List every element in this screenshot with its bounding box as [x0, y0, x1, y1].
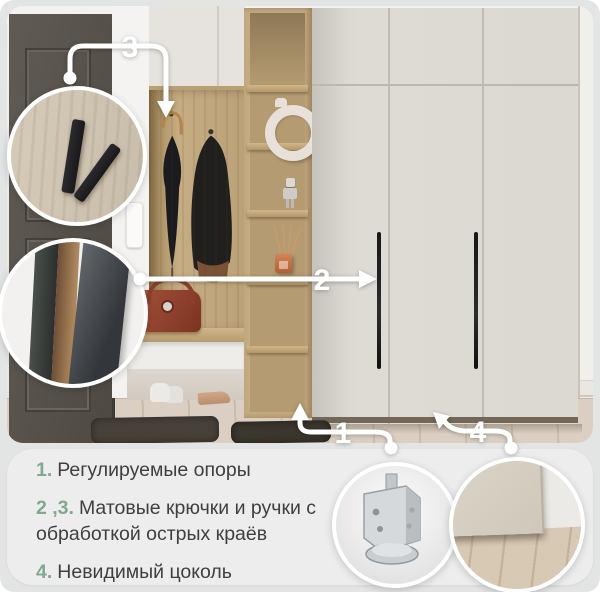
wardrobe-handle	[474, 232, 478, 369]
legend-number: 1.	[36, 459, 52, 481]
side-wall	[578, 6, 593, 398]
door-mat	[231, 420, 331, 443]
bracket-hole	[409, 507, 414, 512]
figurine-torso	[283, 188, 297, 199]
wardrobe	[312, 8, 578, 424]
figurine-head	[286, 178, 295, 187]
shelf	[247, 85, 308, 92]
shelf	[247, 210, 308, 217]
adjustable-foot	[336, 466, 446, 576]
invisible-plinth	[312, 417, 578, 423]
bench-drawer	[127, 342, 245, 371]
shelf	[247, 346, 308, 353]
legend-number: 2 ,3.	[36, 497, 74, 519]
inset-handle-closeup	[0, 238, 148, 388]
legend-text: Матовые крючки и ручки с обработкой остр…	[36, 497, 316, 545]
door-edge	[540, 457, 545, 533]
bracket-hole	[406, 523, 411, 528]
legend-number: 4.	[36, 561, 52, 583]
wardrobe-seam	[482, 8, 484, 424]
wardrobe-shading	[312, 8, 578, 424]
product-infographic: 1.Регулируемые опоры 2 ,3.Матовые крючки…	[0, 0, 600, 592]
sneakers	[150, 383, 170, 402]
legend-text: Невидимый цоколь	[57, 561, 232, 583]
door-mat	[91, 416, 219, 443]
foot-bracket-side	[406, 486, 420, 544]
legend-item-supports: 1.Регулируемые опоры	[36, 457, 384, 483]
door-bottom-closeup	[449, 457, 544, 537]
handbag-buckle	[163, 302, 172, 311]
baseboard	[580, 380, 593, 397]
reed-diffuser	[275, 254, 292, 273]
figurine-legs	[286, 199, 294, 208]
wardrobe-seam	[388, 8, 390, 424]
bracket-hole	[373, 509, 380, 516]
floor-shadow	[307, 424, 582, 434]
legend-item-plinth: 4.Невидимый цоколь	[36, 559, 384, 585]
inset-hook-closeup	[7, 86, 147, 226]
bracket-hole	[377, 526, 383, 532]
open-shelf-tower	[244, 8, 312, 418]
upper-cabinet	[149, 6, 245, 90]
handbag-handle	[147, 278, 195, 304]
legend-text: Регулируемые опоры	[57, 459, 251, 481]
inset-adjustable-foot-closeup	[332, 462, 458, 588]
cabinet-seam	[217, 6, 219, 86]
diffuser-label	[279, 261, 288, 269]
shelf	[247, 278, 308, 285]
figurine	[283, 178, 297, 208]
wardrobe-seam	[312, 84, 578, 86]
inset-plinth-closeup	[449, 457, 585, 592]
floor-closeup	[449, 526, 585, 592]
foot-base-top	[372, 543, 412, 557]
wardrobe-handle	[377, 232, 381, 369]
heels	[198, 391, 231, 405]
